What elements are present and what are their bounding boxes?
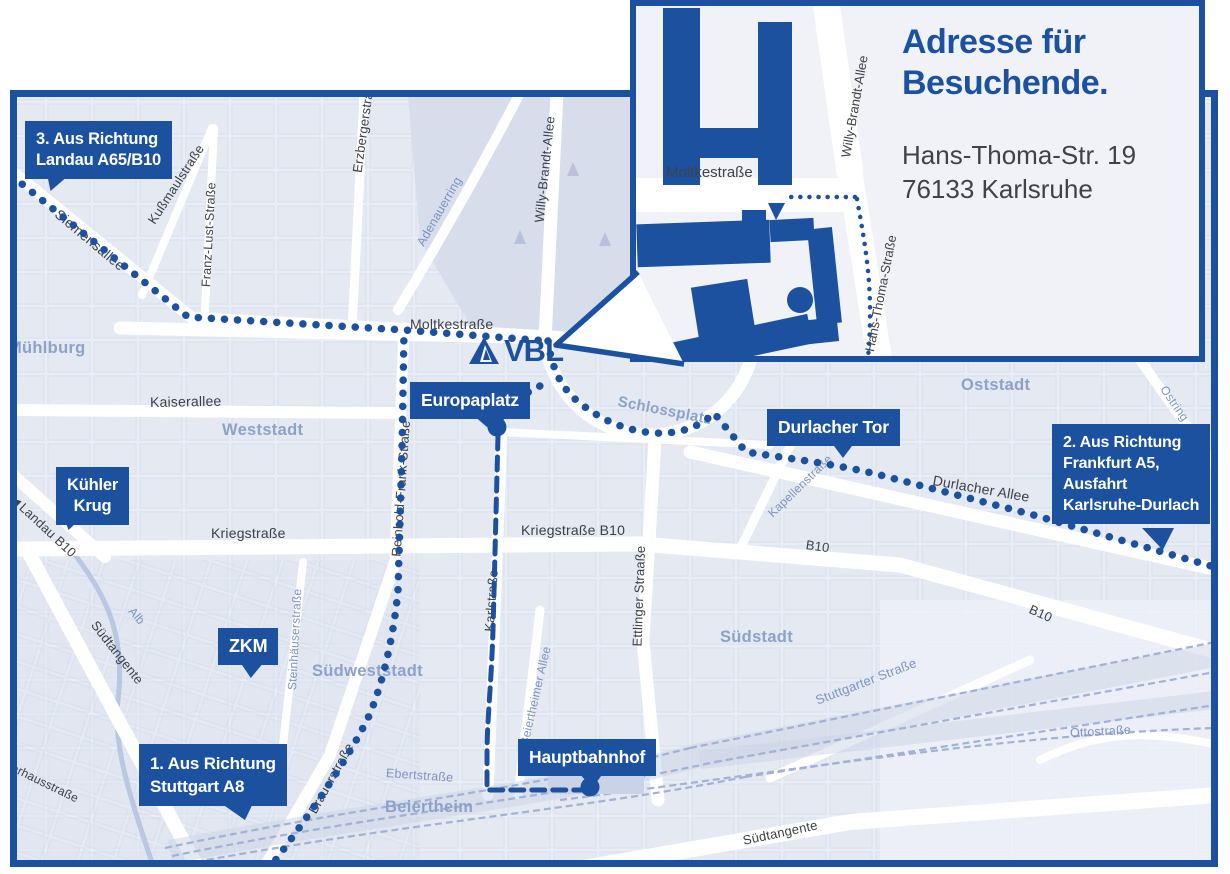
callout-line: Stuttgart A8 xyxy=(150,775,276,798)
callout-line: Hauptbahnhof xyxy=(529,747,645,768)
callout-line: ZKM xyxy=(229,636,267,657)
inset-address-line1: Hans-Thoma-Str. 19 xyxy=(902,138,1136,172)
callout-line: Landau A65/B10 xyxy=(36,150,161,171)
callout-line: 2. Aus Richtung xyxy=(1063,432,1199,453)
callout-line: Europaplatz xyxy=(421,390,519,411)
vbl-directions-map: SiemensalleeKußmaulstraßeFranz-Lust-Stra… xyxy=(0,0,1230,874)
callout-line: Ausfahrt xyxy=(1063,474,1199,495)
route-from-stuttgart xyxy=(268,332,404,867)
inset-address-line2: 76133 Karlsruhe xyxy=(902,172,1136,206)
inset-title: Adresse für Besuchende. xyxy=(902,22,1108,104)
callout-line: Frankfurt A5, xyxy=(1063,453,1199,474)
callout-europaplatz: Europaplatz xyxy=(410,382,530,419)
inset-title-line2: Besuchende. xyxy=(902,63,1108,104)
callout-line: 1. Aus Richtung xyxy=(150,752,276,775)
vbl-logo-text: VBL xyxy=(504,337,563,365)
address-inset-panel: Moltkestraße Willy-Brandt-Allee Hans-Tho… xyxy=(630,0,1205,362)
inset-title-line1: Adresse für xyxy=(902,22,1108,63)
vbl-logo: VBL xyxy=(468,336,563,365)
callout-stuttgart: 1. Aus Richtung Stuttgart A8 xyxy=(139,744,287,806)
inset-route-arrow-icon xyxy=(768,203,785,220)
inset-street-moltkestrasse: Moltkestraße xyxy=(666,164,753,181)
route-from-landau xyxy=(12,176,548,341)
callout-zkm: ZKM xyxy=(218,628,278,665)
callout-line: Durlacher Tor xyxy=(778,417,889,438)
callout-frankfurt: 2. Aus Richtung Frankfurt A5, Ausfahrt K… xyxy=(1052,424,1210,524)
callout-durlacher-tor: Durlacher Tor xyxy=(767,409,900,446)
route-hauptbahnhof-tram xyxy=(487,436,582,790)
callout-line: 3. Aus Richtung xyxy=(36,129,161,150)
callout-line: Karlsruhe-Durlach xyxy=(1063,495,1199,516)
callout-line: Kühler xyxy=(67,475,118,496)
inset-address: Hans-Thoma-Str. 19 76133 Karlsruhe xyxy=(902,138,1136,206)
callout-hauptbahnhof: Hauptbahnhof xyxy=(518,739,656,776)
vbl-triangle-icon xyxy=(468,336,500,365)
